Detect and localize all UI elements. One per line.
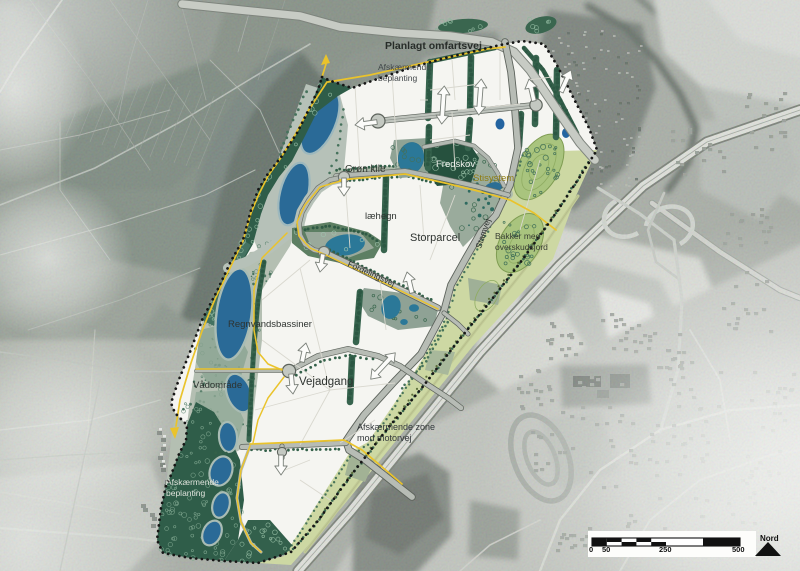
svg-text:250: 250 xyxy=(659,545,672,554)
svg-text:Vådområde: Vådområde xyxy=(193,380,242,391)
svg-text:mod motorvej: mod motorvej xyxy=(357,433,412,443)
svg-text:Afskærmende zone: Afskærmende zone xyxy=(357,422,435,432)
svg-text:beplanting: beplanting xyxy=(166,488,206,498)
svg-text:Afskærmende: Afskærmende xyxy=(378,62,431,72)
svg-text:500: 500 xyxy=(732,545,745,554)
svg-text:læhegn: læhegn xyxy=(365,211,397,222)
svg-text:Bakker med: Bakker med xyxy=(495,231,541,241)
svg-text:Stisystem: Stisystem xyxy=(473,173,514,184)
svg-text:Fredskov: Fredskov xyxy=(436,159,475,170)
svg-text:Regnvandsbassiner: Regnvandsbassiner xyxy=(228,319,312,330)
svg-text:50: 50 xyxy=(602,545,610,554)
svg-text:Storparcel: Storparcel xyxy=(410,232,460,244)
svg-text:Planlagt omfartsvej: Planlagt omfartsvej xyxy=(385,40,482,52)
svg-text:beplanting: beplanting xyxy=(378,73,418,83)
svg-text:Afskærmende: Afskærmende xyxy=(166,477,219,487)
svg-text:Nord: Nord xyxy=(760,534,779,543)
svg-text:Vejadgang: Vejadgang xyxy=(299,376,353,388)
svg-text:0: 0 xyxy=(589,545,593,554)
svg-text:overskudsjord: overskudsjord xyxy=(495,242,548,252)
svg-text:Grøn kile: Grøn kile xyxy=(345,164,386,175)
